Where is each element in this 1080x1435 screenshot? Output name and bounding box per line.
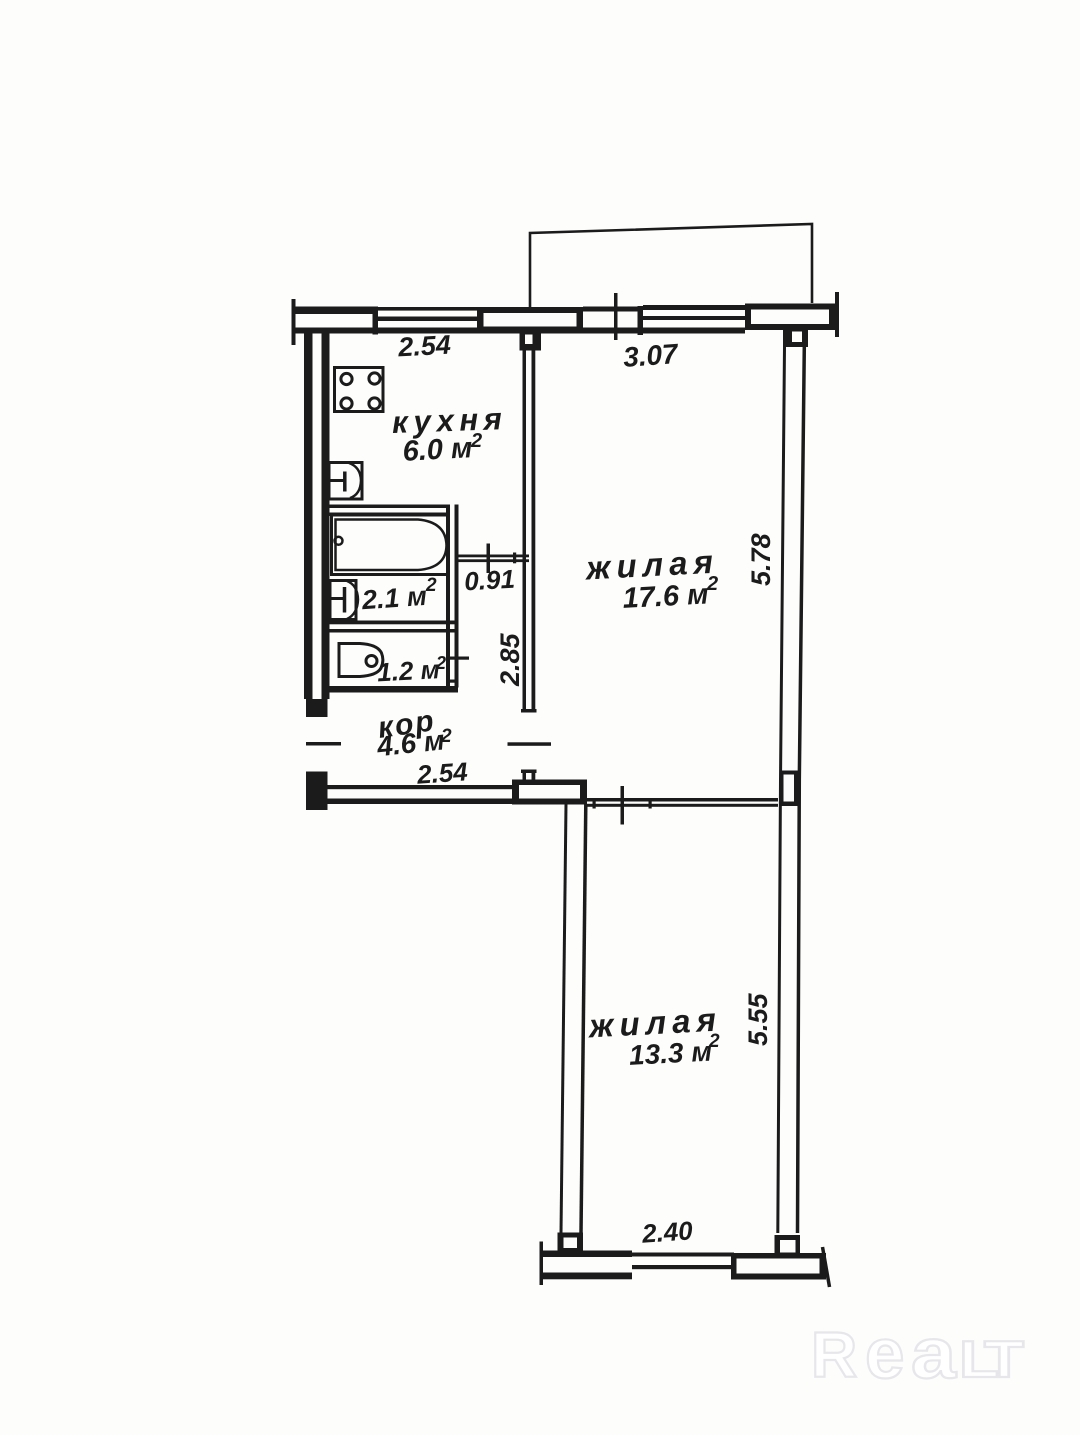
svg-text:1.2 м: 1.2 м bbox=[376, 654, 440, 687]
svg-text:a: a bbox=[911, 1315, 957, 1394]
svg-text:2: 2 bbox=[440, 726, 452, 747]
svg-text:R: R bbox=[811, 1319, 857, 1391]
svg-text:2: 2 bbox=[425, 575, 437, 596]
svg-text:2.1 м: 2.1 м bbox=[360, 581, 428, 616]
svg-text:5.55: 5.55 bbox=[743, 992, 773, 1046]
svg-text:2: 2 bbox=[706, 573, 718, 595]
svg-text:2: 2 bbox=[435, 653, 446, 673]
svg-text:2.85: 2.85 bbox=[495, 632, 525, 687]
svg-text:2: 2 bbox=[470, 430, 482, 452]
svg-text:2.40: 2.40 bbox=[640, 1215, 694, 1249]
svg-text:13.3 м: 13.3 м bbox=[628, 1036, 713, 1071]
svg-text:2: 2 bbox=[708, 1031, 720, 1052]
svg-text:2.54: 2.54 bbox=[415, 756, 469, 790]
svg-text:4.6 м: 4.6 м bbox=[375, 724, 447, 762]
svg-text:e: e bbox=[865, 1315, 905, 1394]
svg-text:T: T bbox=[984, 1331, 1024, 1389]
svg-text:5.78: 5.78 bbox=[746, 533, 776, 586]
svg-text:3.07: 3.07 bbox=[622, 338, 680, 373]
svg-text:2.54: 2.54 bbox=[397, 330, 452, 363]
svg-text:0.91: 0.91 bbox=[463, 564, 515, 597]
svg-text:17.6 м: 17.6 м bbox=[622, 578, 710, 614]
svg-text:6.0 м: 6.0 м bbox=[402, 432, 473, 468]
